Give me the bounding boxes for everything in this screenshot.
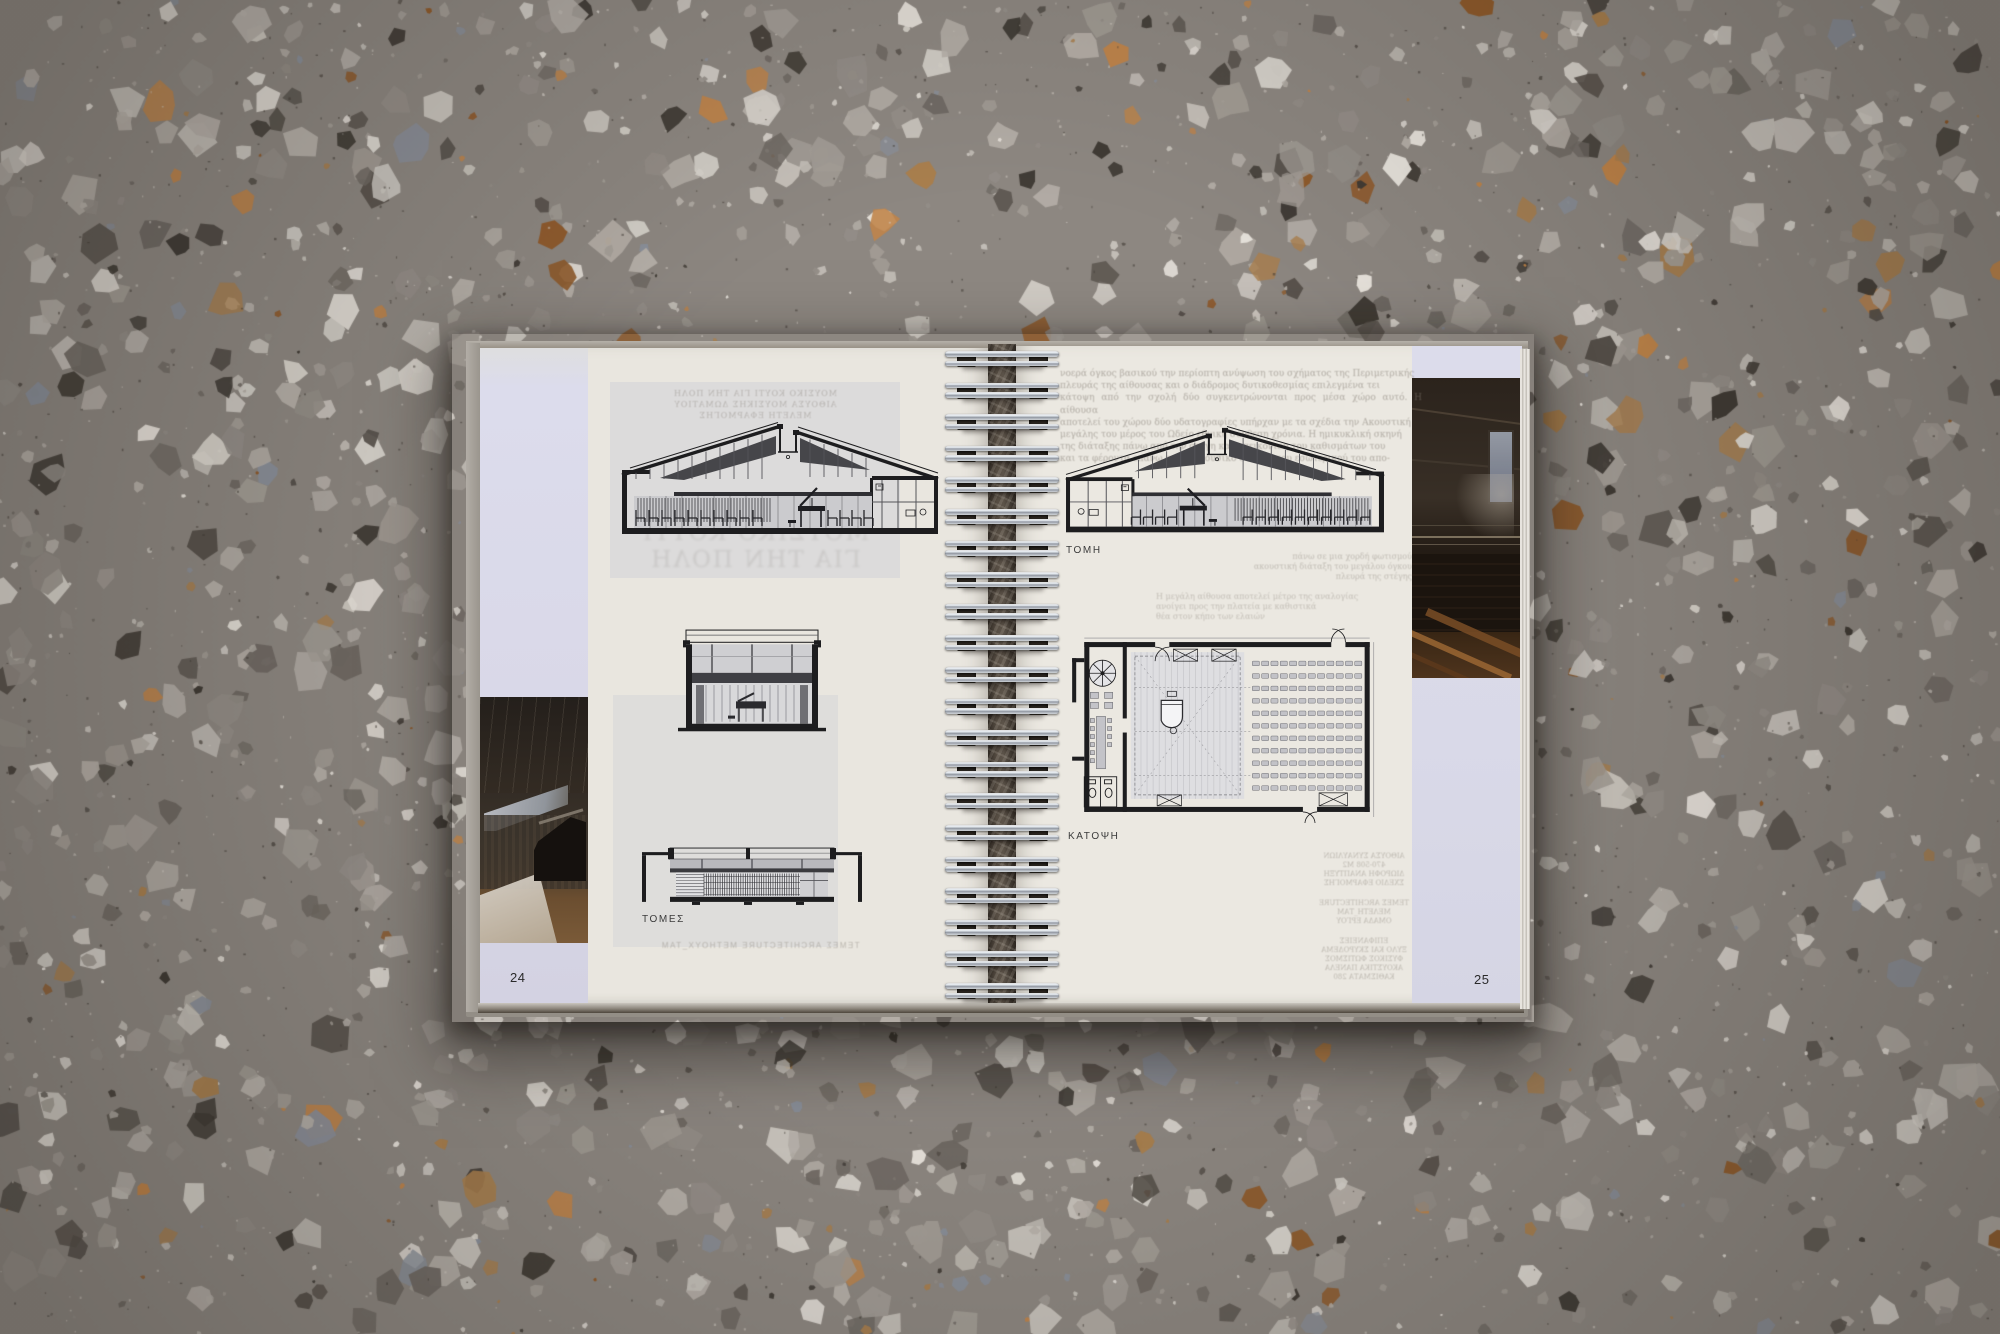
spiral-coil: [944, 634, 1060, 654]
spiral-stair: [1089, 660, 1115, 686]
spiral-coil: [944, 698, 1060, 718]
spiral-coil: [944, 919, 1060, 939]
spiral-coil: [944, 476, 1060, 496]
showthrough-header-text: ΜΟΥΣΙΚΟ ΚΟΥΤΙ ΓΙΑ ΤΗΝ ΠΟΛΗΑΙΘΟΥΣΑ ΜΟΥΣΙΚ…: [626, 388, 884, 421]
photo-seat-rows: [1412, 554, 1522, 632]
spiral-coil: [944, 792, 1060, 812]
spiral-coil: [944, 413, 1060, 433]
photo-light-glow: [1452, 474, 1514, 544]
cover-left-edge: [466, 343, 480, 1012]
spiral-coil: [944, 856, 1060, 876]
caption-tomes: ΤΟΜΕΣ: [642, 914, 685, 925]
photo-ceiling-beam: [1412, 407, 1522, 427]
photo-railing: [1412, 544, 1522, 545]
showthrough-caption: ΤΕΜΕΣ ARCHITECTURE ΜΕΤΗΟΥΧ_ΤΑΜ: [630, 941, 890, 950]
showthrough-credits: ΑΙΘΟΥΣΑ ΣΥΝΑΥΛΙΩΝ470-508 Μ2ΔΙΩΡΟΦΗ ΑΝΑΠΤ…: [1288, 852, 1440, 993]
photo-wood-step: [1412, 642, 1498, 678]
spiral-coil: [944, 729, 1060, 749]
section-drawing-cross: [672, 626, 832, 738]
photo-ceiling: [480, 697, 588, 793]
photo-auditorium-interior: [1412, 378, 1522, 678]
floor-plan-drawing: [1060, 628, 1394, 824]
page-left: 24 ΜΟΥΣΙΚΟ ΚΟΥΤΙ ΓΙΑ ΤΗΝ ΠΟΛΗΑΙΘΟΥΣΑ ΜΟΥ…: [480, 348, 988, 1004]
spiral-coil: [944, 350, 1060, 370]
spiral-coil: [944, 950, 1060, 970]
page-number-left: 24: [510, 970, 525, 985]
showthrough-text-block: Η μεγάλη αίθουσα αποτελεί μέτρο της αναλ…: [1156, 592, 1412, 622]
spiral-coil: [944, 887, 1060, 907]
spiral-coil: [944, 445, 1060, 465]
spiral-coil: [944, 666, 1060, 686]
spiral-coil: [944, 571, 1060, 591]
spiral-coil: [944, 540, 1060, 560]
spiral-coil: [944, 761, 1060, 781]
spiral-coil: [944, 982, 1060, 1002]
lobby-furniture: [1090, 692, 1112, 768]
caption-katopsi: ΚΑΤΟΨΗ: [1068, 831, 1119, 842]
section-drawing-long: [640, 845, 864, 908]
photo-railing: [1412, 536, 1522, 538]
spiral-coil: [944, 603, 1060, 623]
section-drawing-tomh: [1064, 426, 1386, 538]
photo-railing: [1412, 525, 1522, 526]
section-drawing-main: [620, 422, 940, 540]
page-number-right: 25: [1474, 972, 1489, 987]
photo-piano-hall-interior: [480, 697, 588, 943]
spiral-binding: [944, 346, 1060, 1010]
showthrough-text-block: πάνω σε μια χορδή φωτισμούακουστική διάτ…: [1184, 552, 1412, 582]
page-stack-fore-edge: [1520, 349, 1530, 1009]
page-right: 25 νοερά όγκος βασικού την περίοπτη ανύψ…: [1016, 346, 1522, 1004]
spiral-coil: [944, 508, 1060, 528]
caption-tomh: ΤΟΜΗ: [1066, 545, 1102, 556]
photo-wood-step: [1412, 626, 1512, 678]
spiral-coil: [944, 382, 1060, 402]
spiral-coil: [944, 824, 1060, 844]
